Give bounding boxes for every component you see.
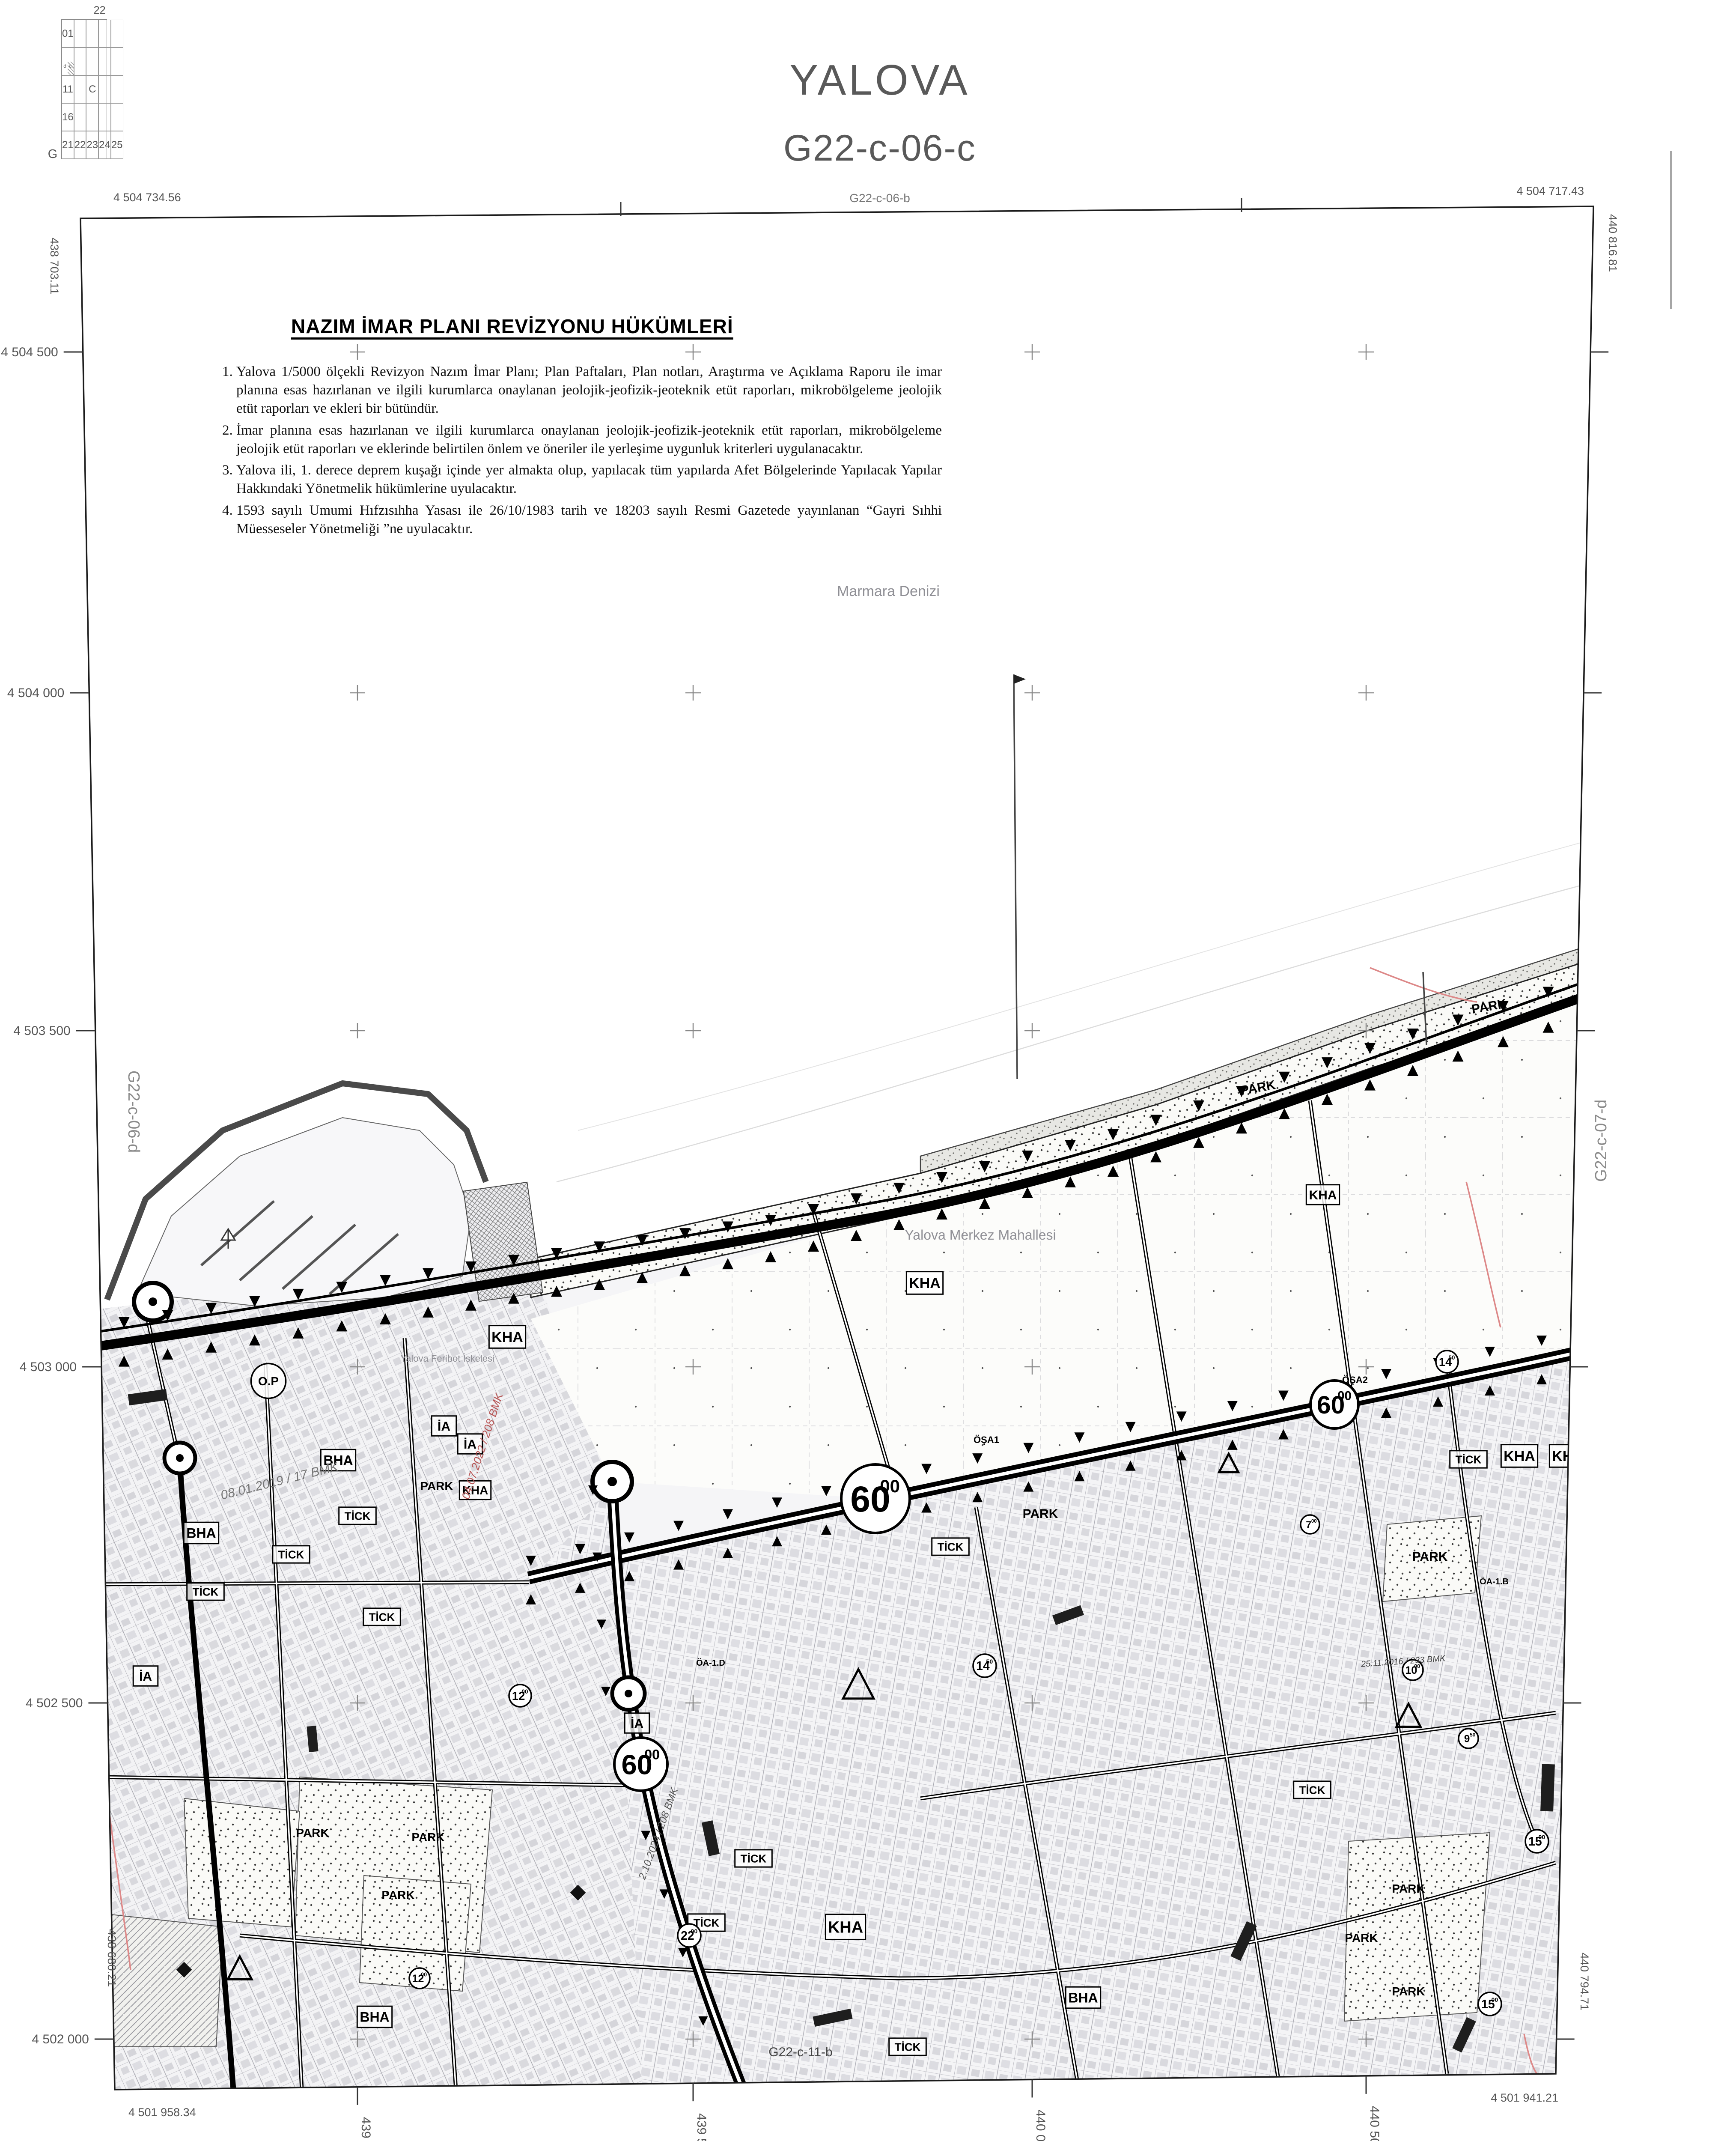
svg-text:TİCK: TİCK (345, 1509, 371, 1522)
index-grid-cell: 25 (111, 131, 123, 159)
road-width-badge-700: 700 (1301, 1515, 1319, 1534)
index-grid-cell (98, 20, 111, 48)
index-grid-cell (86, 103, 98, 131)
map-label-ÖA-1.B: ÖA-1.B (1480, 1577, 1509, 1586)
svg-text:KHA: KHA (1504, 1448, 1535, 1464)
map-label-box-TİCK: TİCK (889, 2038, 926, 2055)
grid-cross (685, 685, 701, 701)
index-grid-cell: 24 (98, 131, 111, 159)
map-label-box-İA: İA (625, 1713, 649, 1733)
plan-notes-list: Yalova 1/5000 ölçekli Revizyon Nazım İma… (205, 363, 942, 538)
svg-text:00: 00 (644, 1747, 660, 1762)
road-triangle-marker (1588, 1363, 1599, 1373)
svg-text:BHA: BHA (360, 2010, 389, 2025)
index-grid-cell (74, 20, 86, 48)
svg-text:TİCK: TİCK (1299, 1783, 1325, 1796)
plan-note-item-1: Yalova 1/5000 ölçekli Revizyon Nazım İma… (236, 363, 942, 418)
map-label-box-TİCK: TİCK (187, 1583, 224, 1600)
index-grid-origin-letter: G (48, 147, 57, 161)
page-title: YALOVA (599, 56, 1160, 105)
index-grid-cell (98, 103, 111, 131)
neighbor-sheet-top: G22-c-06-b (849, 191, 910, 205)
grid-cross (1024, 1023, 1040, 1038)
index-grid-cell (86, 48, 98, 75)
index-grid-quadrant-letter: c (69, 63, 72, 69)
road-width-badge-950: 950 (1459, 1729, 1478, 1748)
road-triangle-marker (1588, 1324, 1599, 1335)
grid-cross (1024, 685, 1040, 701)
index-grid-cell (111, 48, 123, 75)
svg-text:00: 00 (1491, 1997, 1498, 2004)
svg-text:00: 00 (1538, 1834, 1545, 1841)
svg-text:KHA: KHA (1309, 1188, 1337, 1202)
index-grid-cell (111, 103, 123, 131)
svg-text:50: 50 (1448, 1354, 1455, 1361)
map-label-PARK: PARK (1345, 1931, 1378, 1944)
northing-label: 4 503 000 (20, 1360, 77, 1374)
corner-coordinate-top-left-e: 438 703.11 (48, 238, 61, 295)
neighbor-sheet-right: G22-c-07-d (1592, 1100, 1610, 1182)
index-grid-cell (74, 48, 86, 75)
northing-label: 4 504 500 (1, 345, 58, 359)
svg-text:KHA: KHA (491, 1329, 523, 1345)
svg-text:TİCK: TİCK (741, 1852, 767, 1865)
index-grid-cell: 11 (62, 75, 74, 103)
map-label-box-BHA: BHA (357, 2006, 392, 2028)
index-grid-cell (98, 75, 111, 103)
svg-text:00: 00 (421, 1971, 427, 1977)
neighbor-sheet-bottom: G22-c-11-b (768, 2045, 833, 2059)
index-grid-cell (98, 48, 111, 75)
road-width-badge-2200: 2200 (678, 1924, 701, 1947)
plan-note-item-3: Yalova ili, 1. derece deprem kuşağı için… (236, 461, 942, 498)
map-sheet: { "sheet": { "city": "YALOVA", "sheet_no… (0, 0, 1736, 2141)
corner-coordinate-top-right-n: 4 504 717.43 (1516, 185, 1584, 197)
svg-text:İA: İA (438, 1419, 450, 1434)
map-label-circle-O.P: O.P (251, 1363, 286, 1398)
neighbor-sheet-left: G22-c-06-d (125, 1070, 143, 1153)
grid-cross (685, 1023, 701, 1038)
index-grid-cell: 16 (62, 103, 74, 131)
northing-label: 4 504 000 (7, 686, 64, 700)
easting-label: 439 500 (694, 2113, 709, 2141)
map-label-Yalova-Feribot-İskelesi: Yalova Feribot İskelesi (400, 1353, 494, 1364)
map-label-PARK: PARK (1023, 1507, 1058, 1521)
svg-text:İA: İA (631, 1717, 643, 1731)
index-grid-cell (86, 20, 98, 48)
svg-text:50: 50 (1470, 1732, 1476, 1738)
easting-label: 440 000 (1033, 2109, 1048, 2141)
svg-text:TİCK: TİCK (938, 1540, 964, 1553)
road-width-badge-6000: 6000 (1310, 1381, 1358, 1428)
svg-text:TİCK: TİCK (278, 1548, 304, 1561)
road-width-badge-6000: 6000 (841, 1464, 910, 1533)
svg-text:BHA: BHA (1068, 1990, 1098, 2006)
svg-text:TİCK: TİCK (193, 1585, 219, 1598)
map-label-PARK: PARK (1392, 1882, 1425, 1895)
svg-text:İA: İA (139, 1670, 152, 1684)
svg-text:00: 00 (1311, 1519, 1317, 1524)
corner-coordinate-top-left-n: 4 504 734.56 (113, 191, 181, 204)
plan-notes: NAZIM İMAR PLANI REVİZYONU HÜKÜMLERİ Yal… (205, 315, 942, 542)
map-label-PARK: PARK (411, 1831, 444, 1844)
corner-coordinate-top-right-e: 440 816.81 (1606, 214, 1619, 272)
road-triangle-marker (719, 2085, 728, 2094)
index-grid-quadrant-letter: d (63, 63, 66, 69)
map-label-PARK: PARK (296, 1826, 329, 1840)
map-label-PARK: PARK (381, 1888, 414, 1902)
corner-coordinate-bottom-right-n: 4 501 941.21 (1491, 2091, 1558, 2104)
corner-coordinate-bottom-right-e: 440 794.71 (1578, 1953, 1591, 2010)
map-label-Marmara-Denizi: Marmara Denizi (837, 583, 940, 599)
road-triangle-marker (1588, 1007, 1599, 1018)
map-label-box-KHA: KHA (1501, 1445, 1537, 1467)
road-width-badge-6000: 6000 (614, 1738, 667, 1791)
map-label-box-TİCK: TİCK (932, 1538, 969, 1555)
svg-text:KHA: KHA (909, 1275, 941, 1291)
map-label-ÖA-1.D: ÖA-1.D (696, 1658, 725, 1668)
grid-cross (1024, 344, 1040, 360)
road-width-badge-1450: 1450 (973, 1654, 996, 1677)
map-label-box-BHA: BHA (1066, 1987, 1100, 2008)
index-grid-cell (111, 75, 123, 103)
index-grid-cell: 22 (74, 131, 86, 159)
index-grid-cell: 01 (62, 20, 74, 48)
index-grid-cell: 23 (86, 131, 98, 159)
index-grid-cell: dc (62, 48, 74, 75)
map-label-box-BHA: BHA (184, 1522, 218, 1544)
plan-note-item-4: 1593 sayılı Umumi Hıfzısıhha Yasası ile … (236, 501, 942, 538)
road-triangle-marker (75, 1324, 86, 1335)
title-block: YALOVA G22-c-06-c (599, 56, 1160, 170)
map-label-box-İA: İA (432, 1416, 456, 1436)
map-content: Marmara DeniziYalova Merkez MahallesiYal… (75, 344, 1599, 2098)
northing-label: 4 502 500 (26, 1696, 83, 1710)
map-label-PARK: PARK (1392, 1985, 1425, 1998)
northing-label: 4 503 500 (13, 1024, 70, 1038)
road-width-badge-1200: 1200 (509, 1685, 531, 1707)
svg-text:00: 00 (691, 1928, 697, 1935)
corner-coordinate-bottom-left-n: 4 501 958.34 (128, 2106, 196, 2119)
map-label-box-KHA: KHA (906, 1272, 943, 1294)
map-label-box-KHA: KHA (1306, 1185, 1339, 1205)
map-label-box-İA: İA (133, 1666, 158, 1686)
road-width-badge-1500: 1500 (1525, 1830, 1548, 1853)
index-grid-column-header: 22 (94, 4, 106, 17)
map-label-box-TİCK: TİCK (363, 1608, 401, 1625)
corner-coordinate-bottom-left-e: 438 680.21 (105, 1929, 118, 1987)
svg-text:KHA: KHA (828, 1919, 863, 1937)
svg-text:BHA: BHA (186, 1526, 216, 1541)
road-width-badge-1500: 1500 (1478, 1992, 1501, 2016)
index-grid-cell (74, 75, 86, 103)
easting-label: 439 000 (359, 2117, 373, 2141)
plan-note-item-2: İmar planına esas hazırlanan ve ilgili k… (236, 421, 942, 458)
map-label-PARK: PARK (420, 1479, 453, 1493)
plan-notes-title: NAZIM İMAR PLANI REVİZYONU HÜKÜMLERİ (291, 315, 733, 338)
svg-text:50: 50 (986, 1658, 993, 1665)
easting-label: 440 500 (1367, 2106, 1382, 2141)
svg-text:TİCK: TİCK (369, 1610, 395, 1623)
map-label-PARK: PARK (1412, 1550, 1448, 1564)
northing-label: 4 502 000 (32, 2032, 89, 2046)
sheet-number: G22-c-06-c (599, 127, 1160, 170)
grid-cross (1358, 344, 1374, 360)
svg-text:O.P: O.P (258, 1375, 279, 1388)
grid-cross (1358, 685, 1374, 701)
grid-cross (350, 1023, 365, 1038)
map-label-ÖŞA1: ÖŞA1 (974, 1434, 999, 1445)
svg-text:TİCK: TİCK (1456, 1453, 1482, 1466)
map-label-box-KHA: KHA (489, 1326, 525, 1348)
map-label-box-TİCK: TİCK (273, 1546, 310, 1563)
map-label-box-TİCK: TİCK (1294, 1781, 1331, 1798)
map-label-Yalova-Merkez-Mahallesi: Yalova Merkez Mahallesi (905, 1227, 1056, 1243)
svg-text:7: 7 (1306, 1519, 1311, 1530)
index-grid-top: 01dc11C162122232425 (61, 19, 107, 159)
svg-text:00: 00 (521, 1688, 528, 1695)
map-label-box-TİCK: TİCK (735, 1850, 772, 1867)
index-grid-cell (111, 20, 123, 48)
index-grid-cell: C (86, 75, 98, 103)
map-label-box-KHA: KHA (825, 1914, 865, 1940)
map-label-box-TİCK: TİCK (339, 1507, 376, 1524)
road-width-badge-1200: 1200 (409, 1968, 430, 1989)
svg-text:9: 9 (1464, 1733, 1470, 1745)
map-label-box-TİCK: TİCK (1450, 1451, 1487, 1468)
index-grid-cell: 21 (62, 131, 74, 159)
road-width-badge-1450: 1450 (1436, 1351, 1458, 1373)
svg-text:00: 00 (1337, 1389, 1352, 1403)
svg-text:00: 00 (880, 1476, 900, 1496)
svg-text:TİCK: TİCK (895, 2040, 921, 2053)
grid-cross (350, 685, 365, 701)
road-triangle-marker (1588, 973, 1599, 984)
index-grid-cell (74, 103, 86, 131)
